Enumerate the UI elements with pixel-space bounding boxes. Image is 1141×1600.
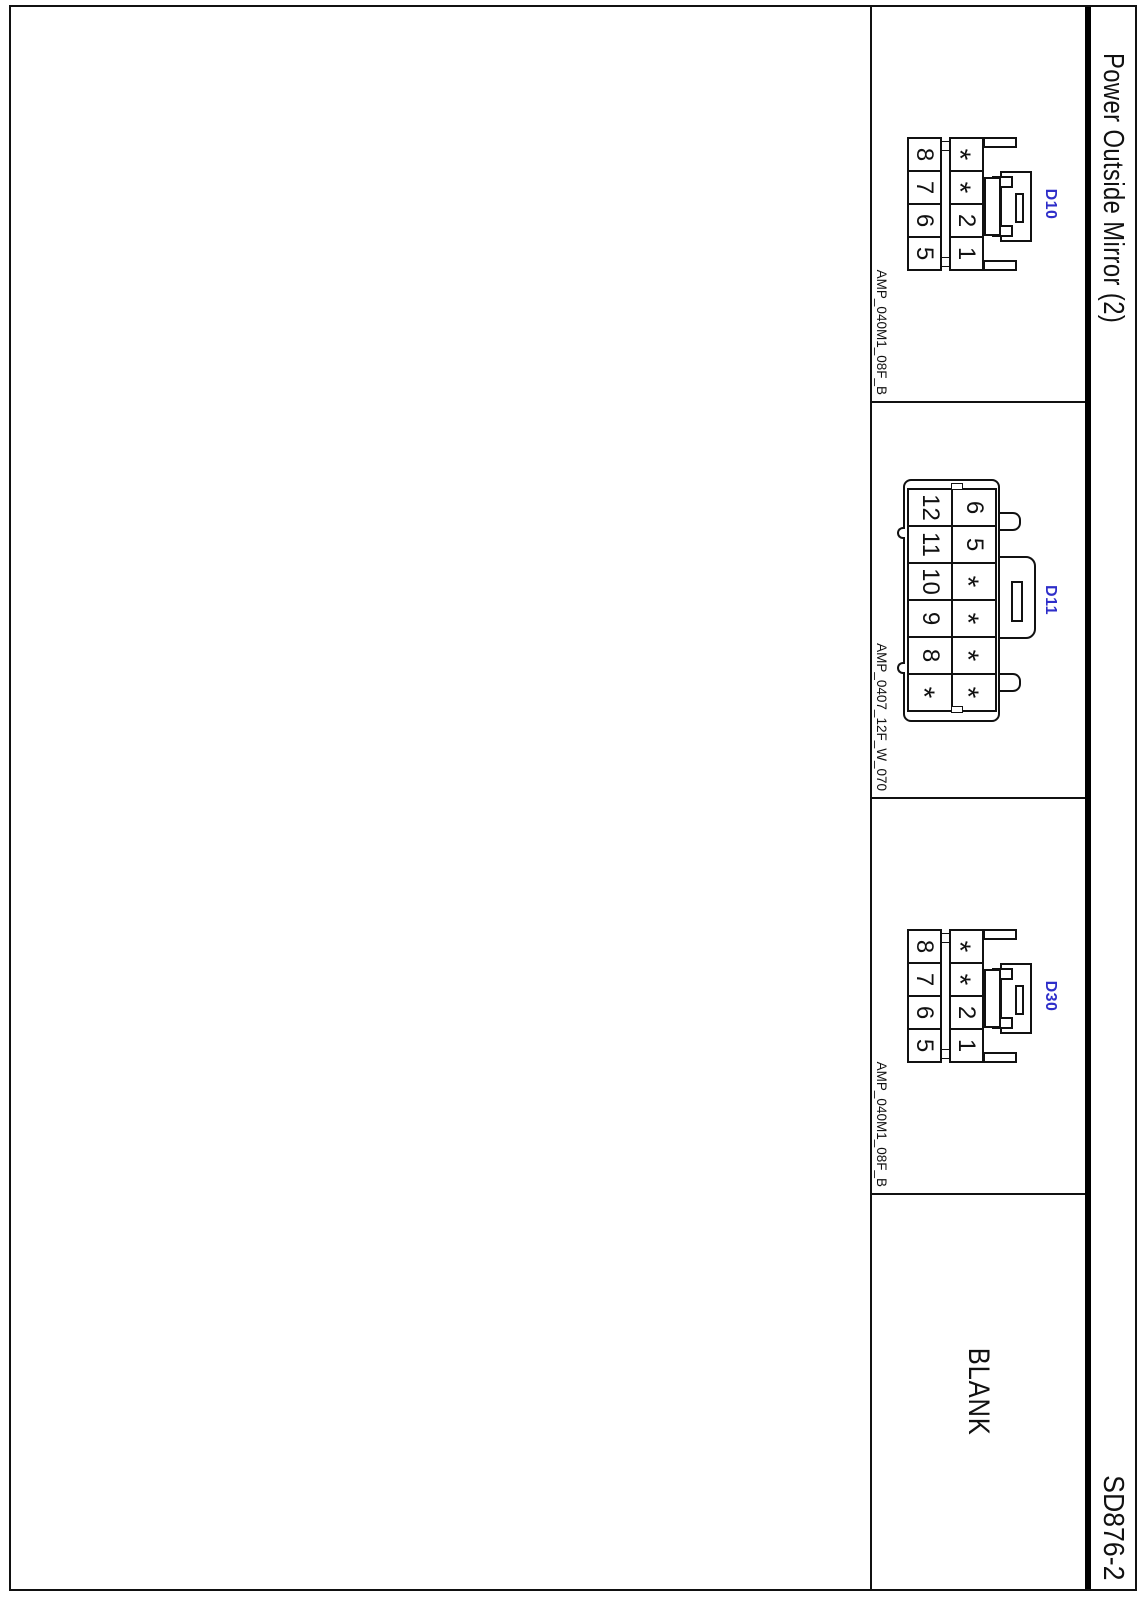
pin: 1 [949, 236, 984, 271]
pin: * [949, 929, 984, 964]
connector-id-label-d11: D11 [1041, 585, 1059, 615]
pin: 8 [907, 137, 942, 172]
connector-cell-d10: D10 * * 2 1 [872, 7, 1085, 403]
latch-lip [984, 177, 1001, 236]
peg [997, 512, 1021, 531]
pin-row-top: * * 2 1 [949, 137, 984, 271]
pin-row-bottom: 12 11 10 9 8 * [907, 488, 953, 712]
mount-tab [983, 260, 1017, 271]
page: Power Outside Mirror (2) SD876-2 D10 [0, 0, 1141, 1600]
pin: 11 [907, 525, 953, 564]
pin-row-top: * * 2 1 [949, 929, 984, 1063]
pin: 6 [951, 488, 997, 527]
connector-id-label-d10: D10 [1041, 189, 1059, 220]
latch-slot [1015, 193, 1024, 223]
index-notch [897, 662, 905, 674]
index-notch [897, 527, 905, 539]
pin: * [951, 599, 997, 638]
pin: 5 [907, 1028, 942, 1063]
pin-row-bottom: 8 7 6 5 [907, 929, 942, 1063]
title-band: Power Outside Mirror (2) SD876-2 [1085, 7, 1135, 1589]
pin: 7 [907, 962, 942, 997]
pin: 2 [949, 995, 984, 1030]
page-frame: Power Outside Mirror (2) SD876-2 D10 [9, 5, 1137, 1591]
connector-part-code-d10: AMP_040M1_08F_B [874, 270, 889, 395]
mount-tab [983, 137, 1017, 148]
blank-label: BLANK [962, 1348, 996, 1436]
pin: * [951, 562, 997, 601]
connector-part-code-d11: AMP_0407_12F_W_070 [874, 643, 889, 791]
pin: 5 [907, 236, 942, 271]
pin-row-top: 6 5 * * * * [951, 488, 997, 712]
connector-band: D10 * * 2 1 [870, 7, 1085, 1589]
page-title: Power Outside Mirror (2) [1097, 53, 1130, 323]
edge-nub [951, 706, 963, 713]
pin: * [951, 636, 997, 675]
edge-nub [951, 483, 963, 490]
pin: * [949, 962, 984, 997]
connector-part-code-d30: AMP_040M1_08F_B [874, 1062, 889, 1187]
pin: * [949, 137, 984, 172]
pin: 6 [907, 203, 942, 238]
sheet-code: SD876-2 [1097, 1475, 1130, 1580]
pin: * [907, 673, 953, 712]
pin: 1 [949, 1028, 984, 1063]
pin-row-bottom: 8 7 6 5 [907, 137, 942, 271]
pin: 5 [951, 525, 997, 564]
pin: 9 [907, 599, 953, 638]
pin: 8 [907, 636, 953, 675]
latch-slot [1011, 581, 1023, 622]
connector-cell-d30: D30 * * 2 1 [872, 799, 1085, 1195]
pin: 8 [907, 929, 942, 964]
pin: 12 [907, 488, 953, 527]
connector-cell-blank: BLANK [872, 1195, 1085, 1589]
latch-lip [984, 969, 1001, 1028]
latch-slot [1015, 985, 1024, 1015]
pin: 10 [907, 562, 953, 601]
mount-tab [983, 1052, 1017, 1063]
pin: 6 [907, 995, 942, 1030]
rotated-canvas: Power Outside Mirror (2) SD876-2 D10 [0, 0, 1141, 1600]
pin: 2 [949, 203, 984, 238]
peg [997, 673, 1021, 692]
diagram-area [11, 7, 870, 1589]
pin: 7 [907, 170, 942, 205]
pin: * [949, 170, 984, 205]
connector-id-label-d30: D30 [1041, 981, 1059, 1012]
mount-tab [983, 929, 1017, 940]
connector-cell-d11: D11 6 5 * * * * [872, 403, 1085, 799]
